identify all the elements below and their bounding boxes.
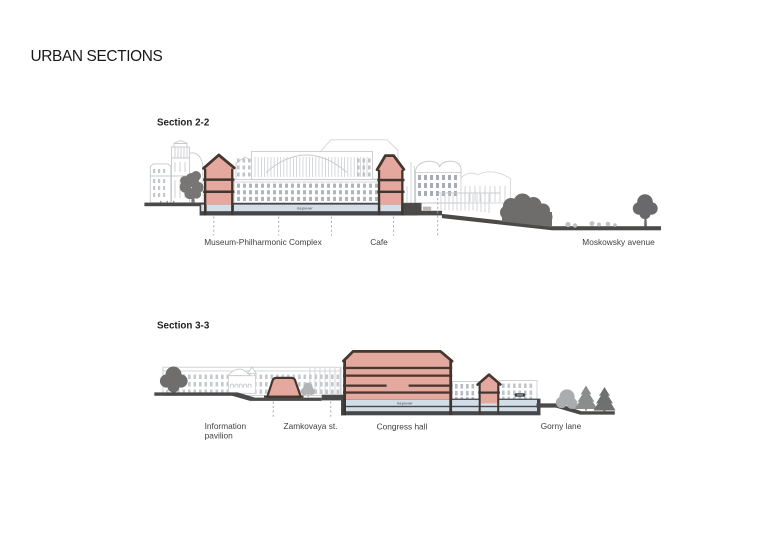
svg-text:Zamkovaya st.: Zamkovaya st.: [284, 421, 338, 431]
svg-text:Section 3-3: Section 3-3: [157, 321, 210, 332]
svg-text:Moskowsky avenue: Moskowsky avenue: [582, 237, 655, 247]
svg-text:Congress hall: Congress hall: [377, 421, 428, 431]
svg-text:Cafe: Cafe: [370, 237, 388, 247]
svg-text:pavilion: pavilion: [205, 431, 234, 441]
svg-text:паркинг: паркинг: [397, 400, 414, 405]
svg-text:Section 2-2: Section 2-2: [157, 118, 210, 129]
svg-text:паркинг: паркинг: [297, 205, 314, 210]
svg-text:Museum-Philharmonic Complex: Museum-Philharmonic Complex: [204, 237, 322, 247]
svg-text:Gorny lane: Gorny lane: [541, 421, 582, 431]
svg-text:Information: Information: [205, 421, 247, 431]
svg-text:URBAN SECTIONS: URBAN SECTIONS: [31, 48, 163, 65]
